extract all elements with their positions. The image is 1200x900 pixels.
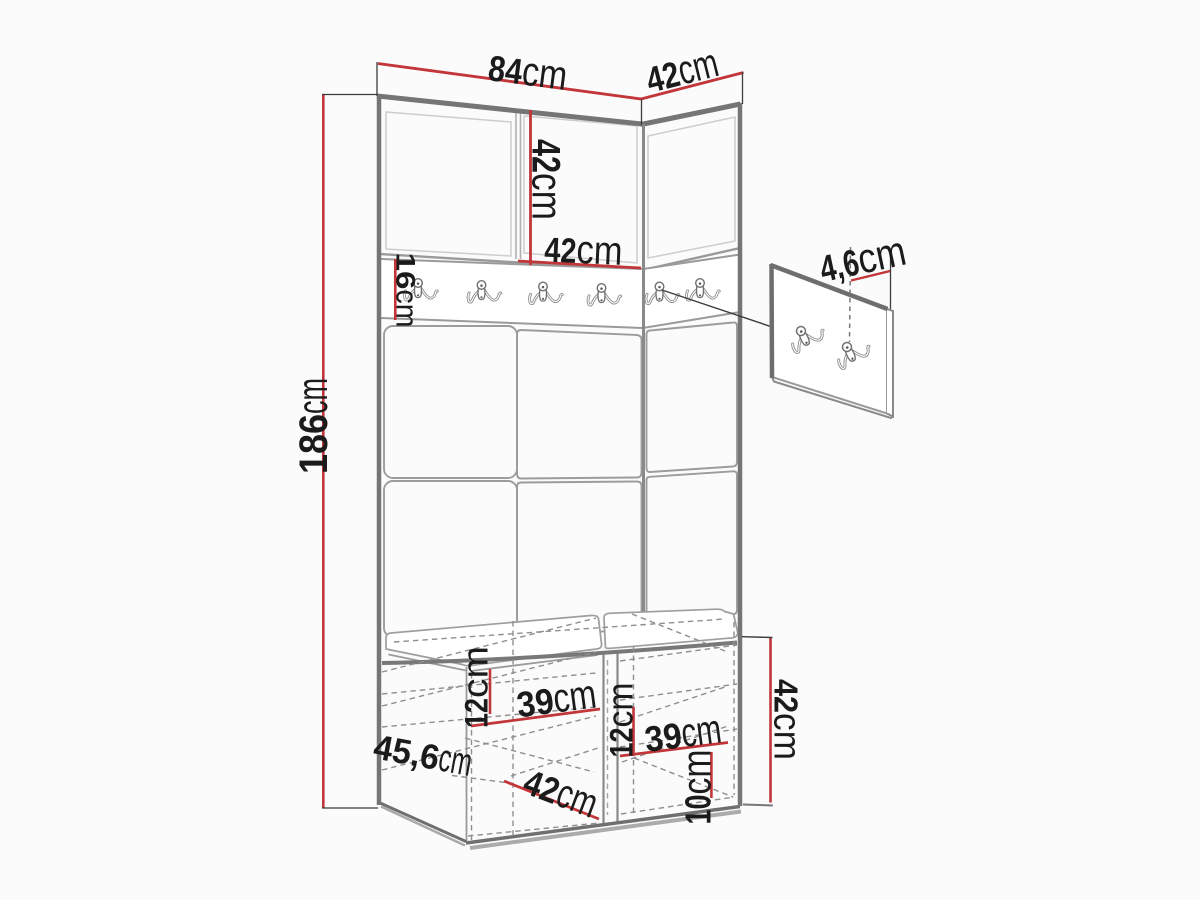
svg-text:42cm: 42cm (523, 139, 571, 220)
svg-text:42cm: 42cm (544, 227, 624, 274)
svg-text:16cm: 16cm (390, 253, 425, 328)
svg-text:42cm: 42cm (766, 679, 808, 760)
svg-text:12cm: 12cm (600, 683, 641, 758)
svg-text:186cm: 186cm (289, 378, 337, 474)
svg-text:10cm: 10cm (674, 750, 720, 825)
svg-text:12cm: 12cm (455, 646, 496, 728)
